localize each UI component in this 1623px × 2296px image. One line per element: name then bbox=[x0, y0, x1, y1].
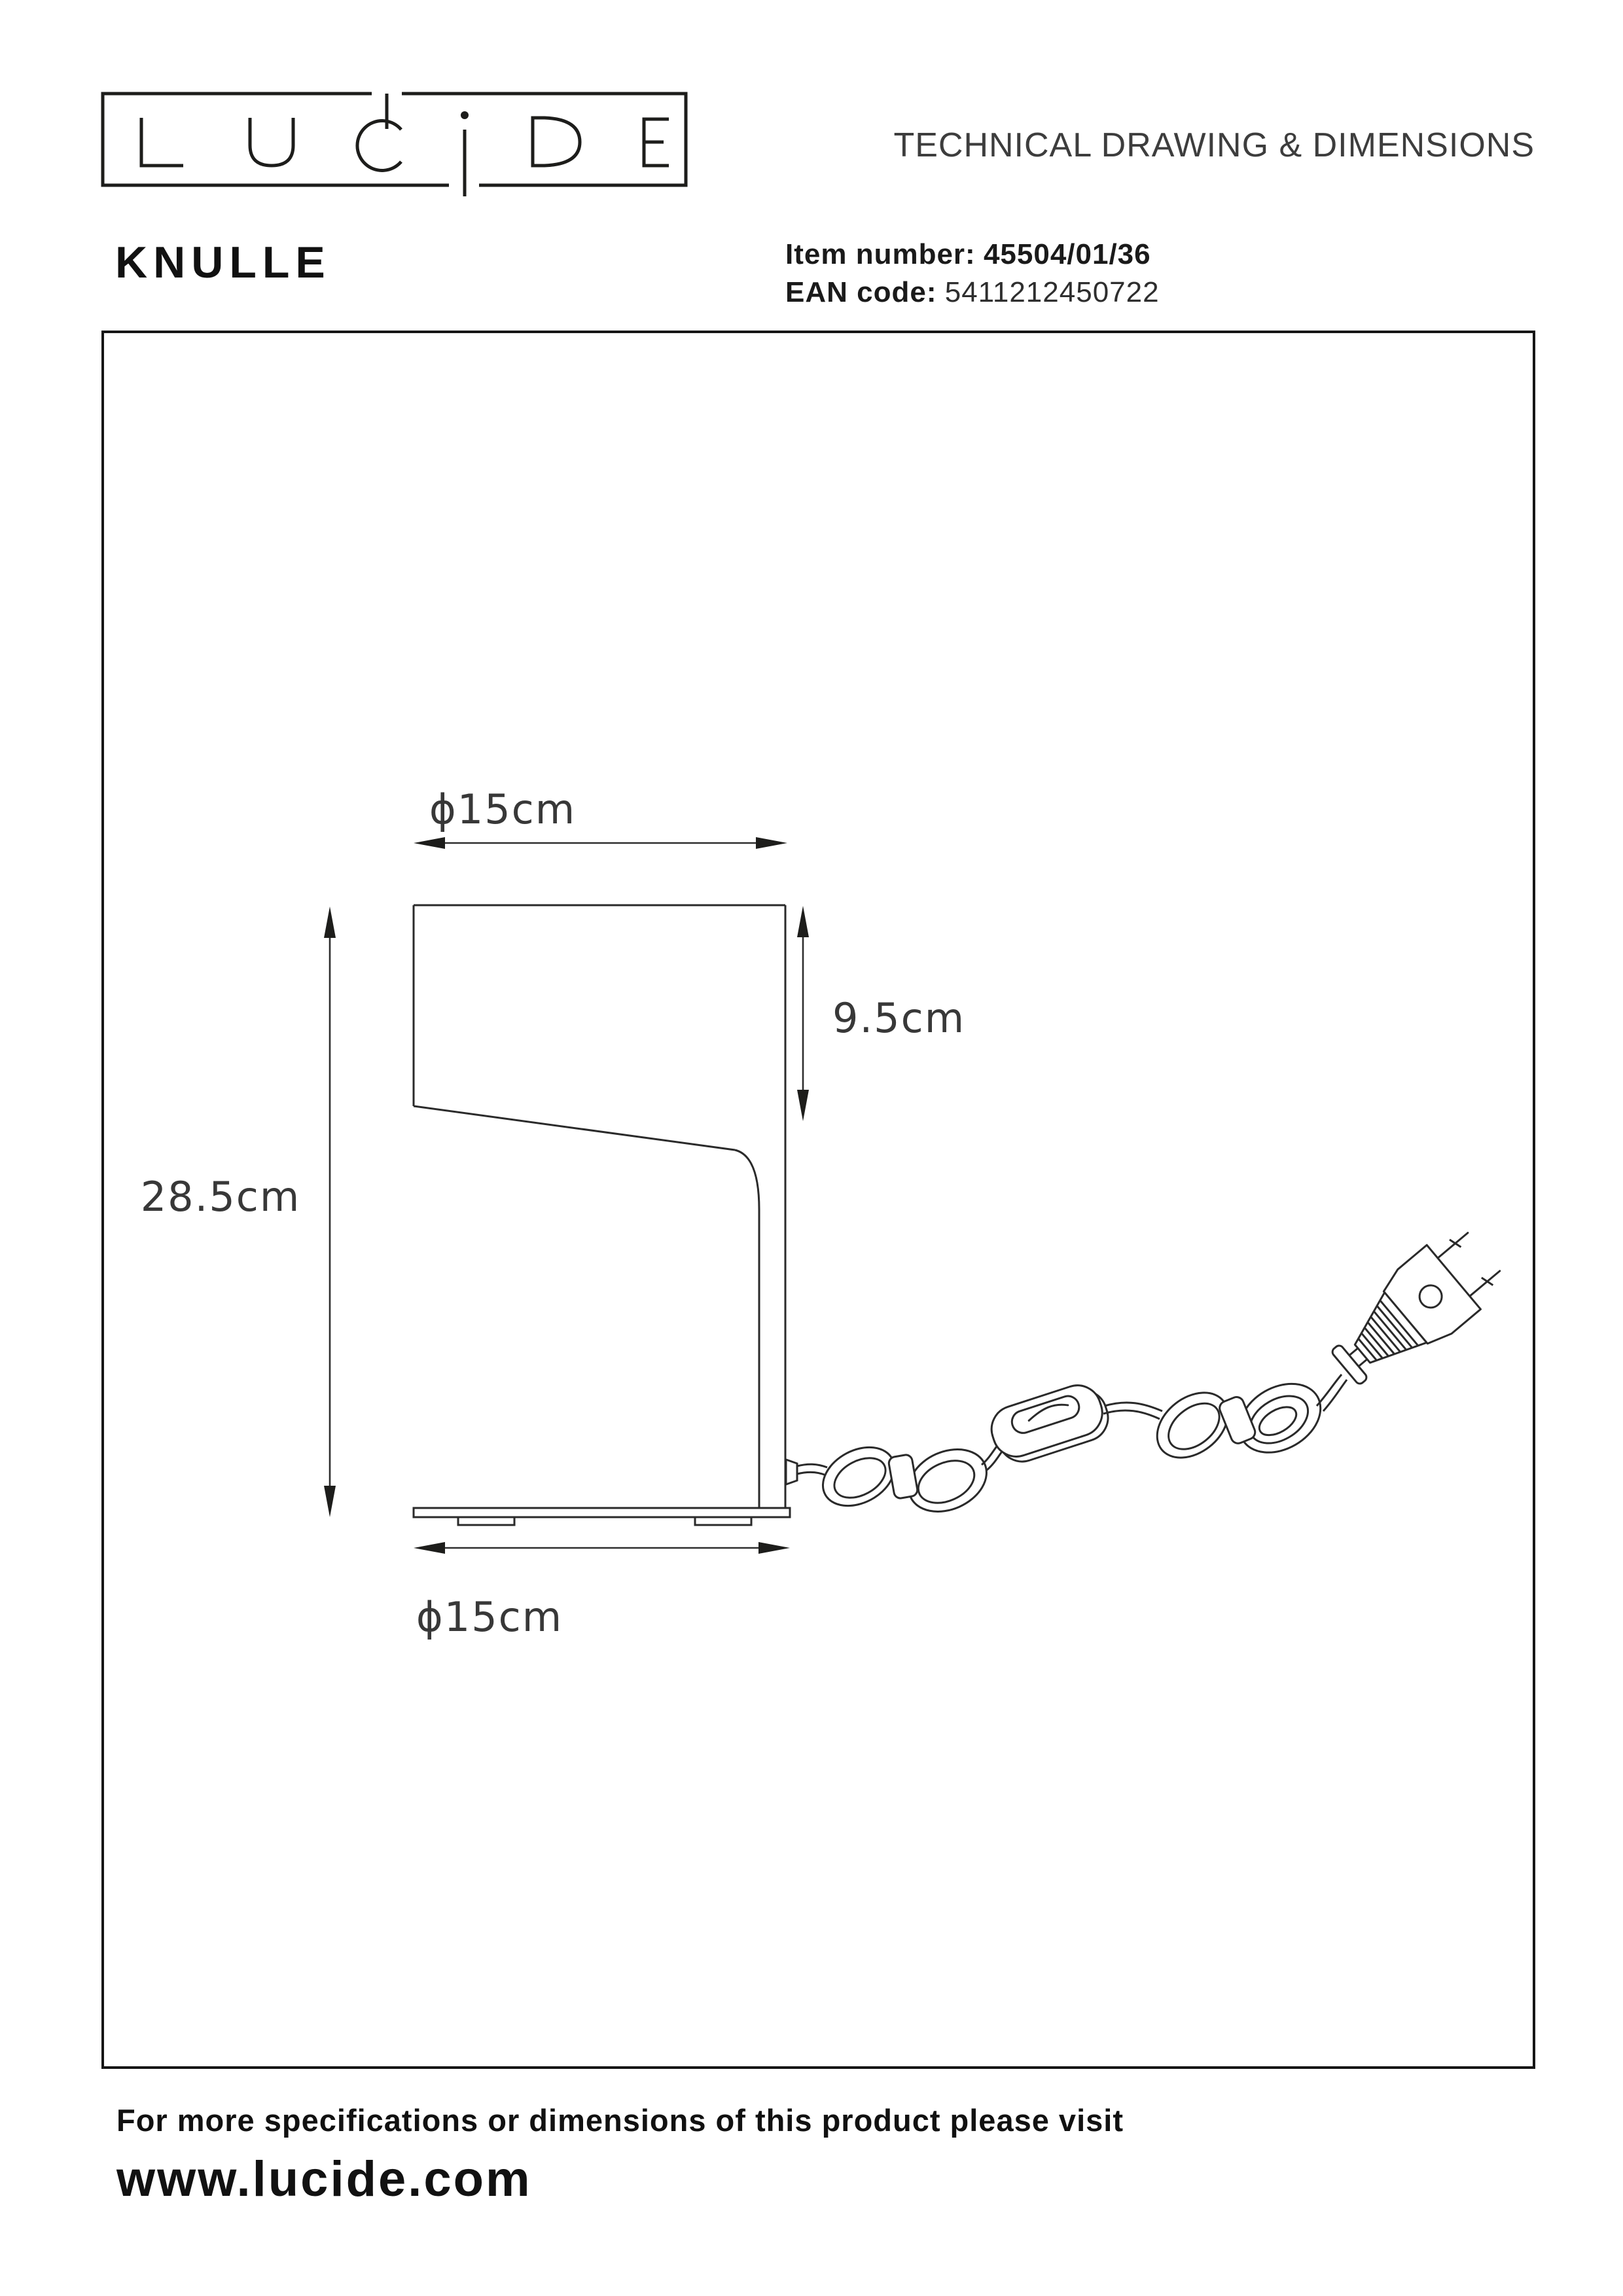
dim-base-diameter-label: ϕ15cm bbox=[416, 1593, 563, 1641]
dim-total-height-label: 28.5cm bbox=[141, 1173, 301, 1221]
footer-note: For more specifications or dimensions of… bbox=[116, 2102, 1124, 2138]
shade-bottom-slant bbox=[414, 1106, 735, 1150]
cord-switch bbox=[986, 1378, 1114, 1469]
dim-shade-height-label: 9.5cm bbox=[832, 994, 965, 1042]
footer-website: www.lucide.com bbox=[116, 2151, 532, 2208]
cord-outlet bbox=[786, 1460, 797, 1484]
technical-drawing: ϕ15cm 9.5cm 28.5cm ϕ15cm bbox=[0, 0, 1623, 2296]
knot-1-wrap bbox=[888, 1454, 919, 1499]
base-foot-left bbox=[458, 1517, 514, 1525]
base-foot-right bbox=[695, 1517, 751, 1525]
base-plate bbox=[414, 1508, 790, 1517]
cord-knot-1 bbox=[813, 1435, 997, 1523]
dim-total-height: 28.5cm bbox=[141, 906, 336, 1517]
drawing-border bbox=[103, 332, 1534, 2068]
dim-shade-height: 9.5cm bbox=[797, 906, 965, 1121]
power-plug bbox=[1318, 1220, 1510, 1401]
dim-base-diameter: ϕ15cm bbox=[414, 1542, 790, 1641]
dim-top-diameter: ϕ15cm bbox=[414, 785, 787, 849]
dim-top-diameter-label: ϕ15cm bbox=[429, 785, 576, 833]
plug-pin-top bbox=[1436, 1233, 1467, 1259]
power-cord bbox=[786, 1220, 1510, 1524]
lamp-outline bbox=[414, 905, 790, 1525]
cord-knot-2 bbox=[1139, 1363, 1338, 1481]
lamp-back-inner-edge bbox=[735, 1150, 759, 1508]
plug-pin-bottom bbox=[1469, 1271, 1499, 1297]
spec-sheet-page: TECHNICAL DRAWING & DIMENSIONS KNULLE It… bbox=[0, 0, 1623, 2296]
